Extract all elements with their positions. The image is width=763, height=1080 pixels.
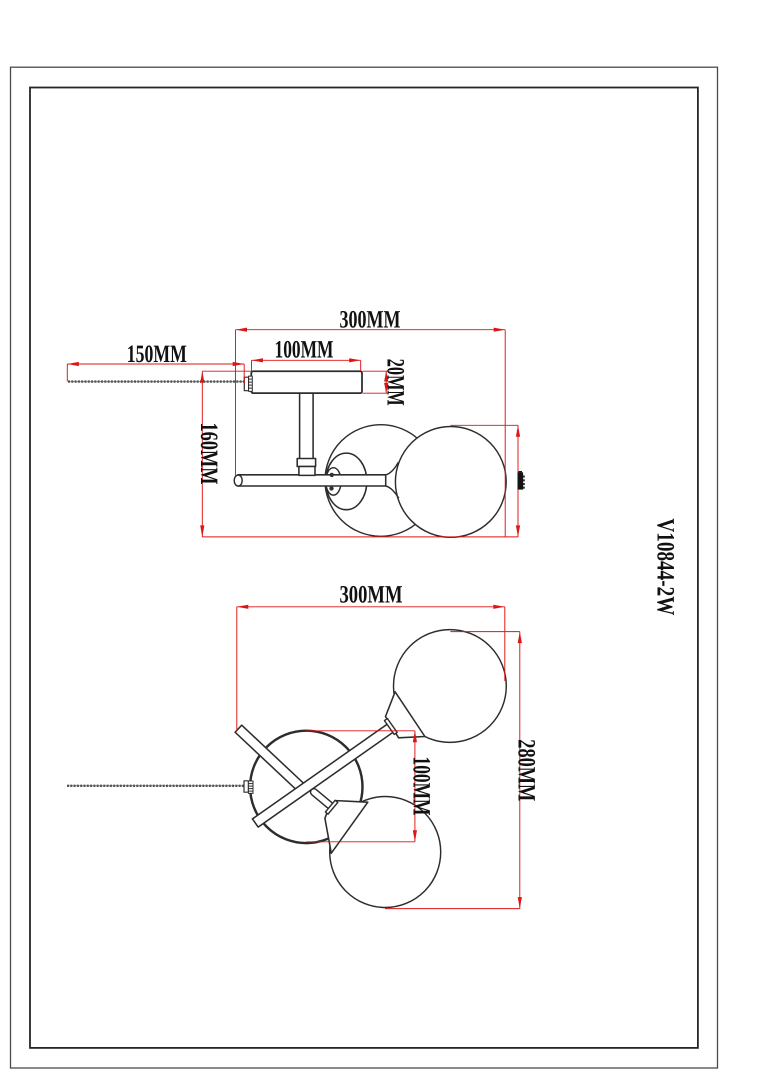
svg-text:300MM: 300MM — [340, 307, 401, 334]
svg-text:300MM: 300MM — [340, 581, 403, 608]
svg-text:160MM: 160MM — [195, 423, 222, 485]
svg-text:V10844-2W: V10844-2W — [652, 518, 679, 615]
svg-text:100MM: 100MM — [407, 757, 434, 816]
svg-text:150MM: 150MM — [127, 341, 187, 368]
svg-text:20MM: 20MM — [382, 359, 409, 406]
svg-text:100MM: 100MM — [275, 337, 334, 364]
svg-text:280MM: 280MM — [512, 739, 539, 801]
